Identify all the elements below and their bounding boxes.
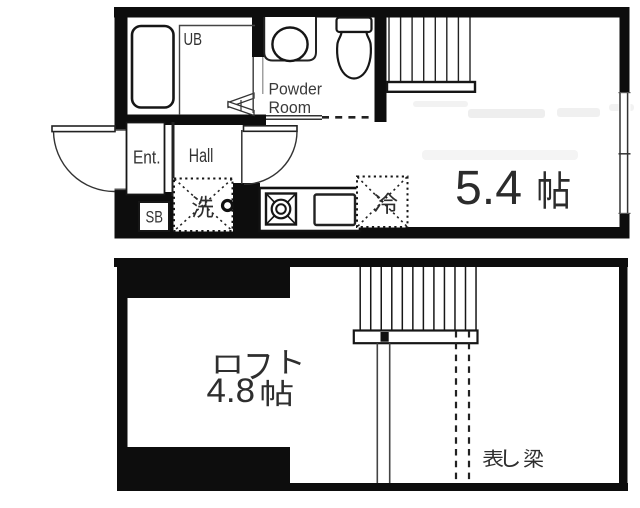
svg-text:Ent.: Ent. — [133, 148, 161, 168]
svg-text:Hall: Hall — [189, 146, 214, 167]
svg-text:Powder: Powder — [269, 81, 323, 99]
svg-text:Room: Room — [269, 99, 312, 117]
svg-text:4.8: 4.8 — [207, 372, 256, 410]
svg-text:5.4: 5.4 — [455, 162, 522, 215]
svg-text:UB: UB — [184, 29, 203, 49]
svg-text:SB: SB — [146, 209, 164, 227]
